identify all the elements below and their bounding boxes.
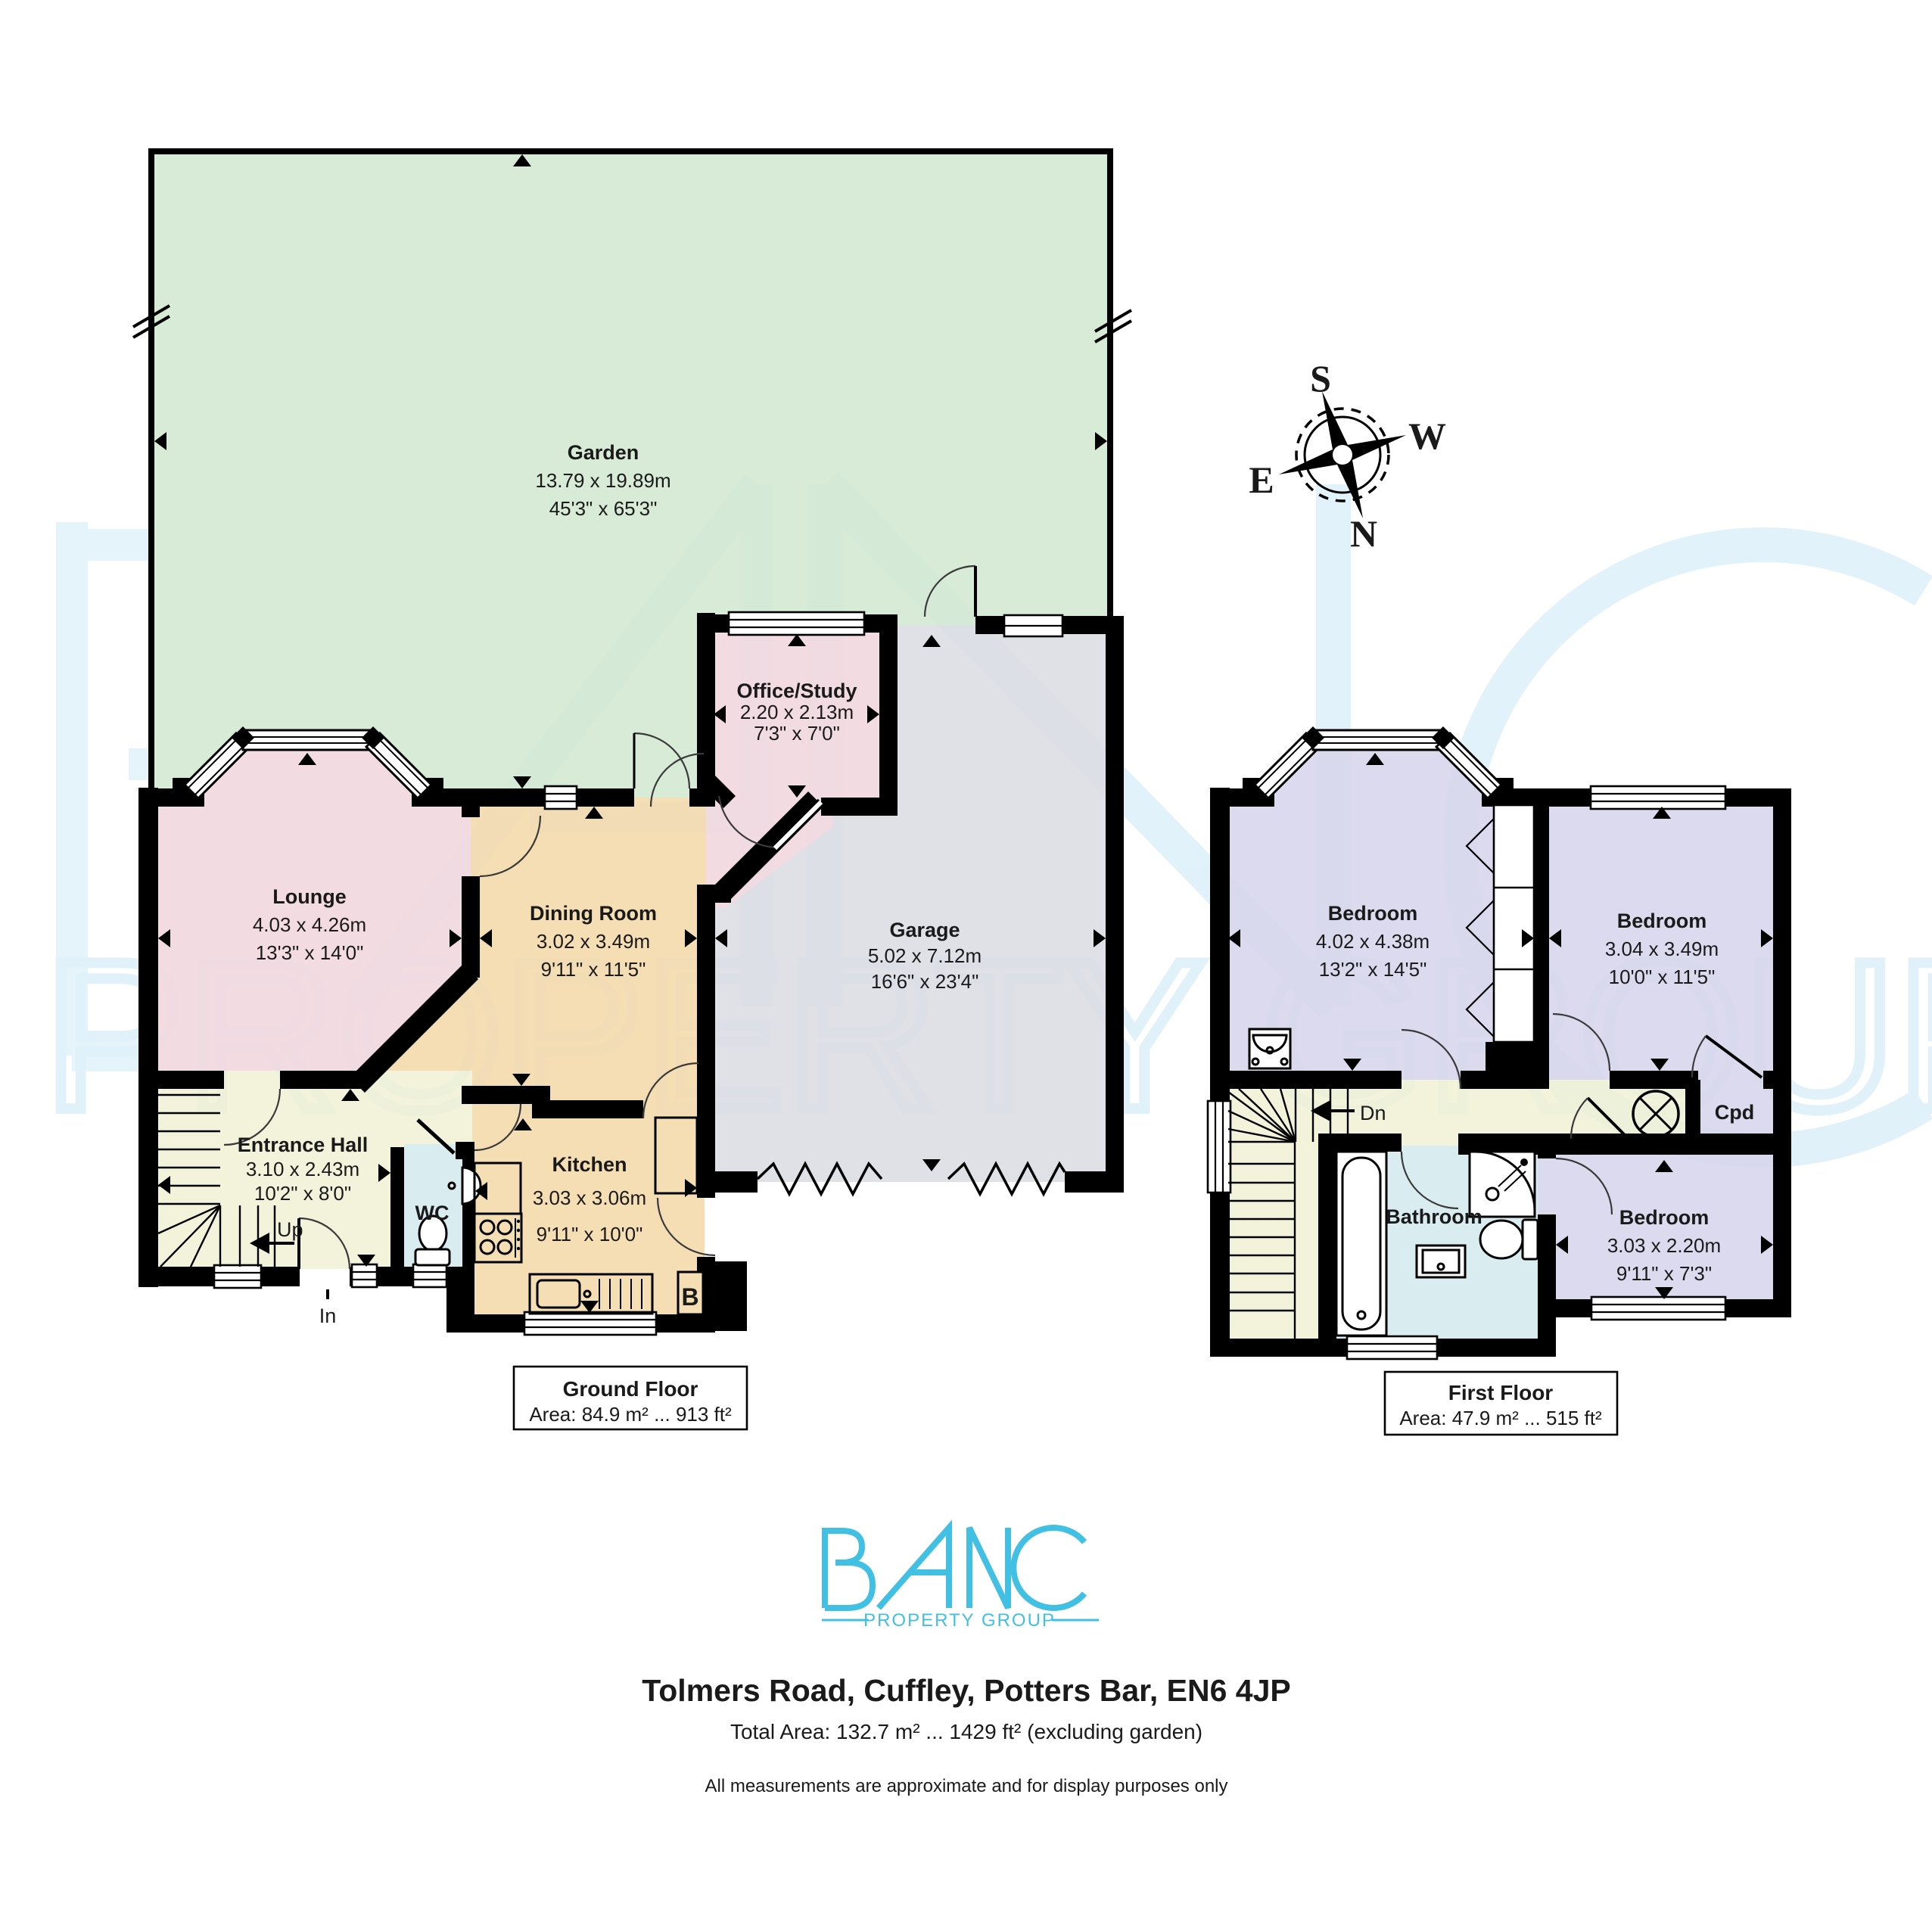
svg-text:Ground Floor: Ground Floor bbox=[563, 1377, 698, 1401]
svg-text:Lounge: Lounge bbox=[272, 885, 346, 908]
svg-text:E: E bbox=[1249, 459, 1274, 501]
svg-text:N: N bbox=[1350, 512, 1377, 555]
svg-text:W: W bbox=[1408, 415, 1446, 457]
svg-text:16'6" x 23'4": 16'6" x 23'4" bbox=[871, 970, 979, 993]
svg-text:Bedroom: Bedroom bbox=[1617, 910, 1707, 932]
svg-text:S: S bbox=[1310, 357, 1331, 400]
svg-text:WC: WC bbox=[415, 1202, 450, 1224]
svg-text:3.03 x 2.20m: 3.03 x 2.20m bbox=[1607, 1234, 1721, 1257]
svg-text:4.03 x 4.26m: 4.03 x 4.26m bbox=[253, 913, 366, 936]
svg-text:Area: 47.9 m² ... 515 ft²: Area: 47.9 m² ... 515 ft² bbox=[1399, 1407, 1602, 1429]
svg-text:13'3" x 14'0": 13'3" x 14'0" bbox=[256, 941, 364, 964]
svg-text:4.02 x 4.38m: 4.02 x 4.38m bbox=[1316, 930, 1430, 953]
svg-text:Area: 84.9 m² ... 913 ft²: Area: 84.9 m² ... 913 ft² bbox=[529, 1403, 732, 1426]
svg-text:9'11" x 10'0": 9'11" x 10'0" bbox=[537, 1223, 643, 1245]
svg-text:3.10 x 2.43m: 3.10 x 2.43m bbox=[246, 1158, 359, 1180]
svg-text:13.79 x 19.89m: 13.79 x 19.89m bbox=[535, 469, 670, 492]
svg-text:5.02 x 7.12m: 5.02 x 7.12m bbox=[868, 944, 982, 967]
svg-text:2.20 x 2.13m: 2.20 x 2.13m bbox=[740, 701, 854, 723]
svg-text:Total Area: 132.7 m² ... 1429: Total Area: 132.7 m² ... 1429 ft² (exclu… bbox=[730, 1720, 1202, 1743]
svg-text:7'3" x 7'0": 7'3" x 7'0" bbox=[754, 722, 840, 745]
svg-text:13'2" x 14'5": 13'2" x 14'5" bbox=[1319, 958, 1427, 981]
svg-text:PROPERTY GROUP: PROPERTY GROUP bbox=[863, 1610, 1056, 1631]
svg-text:Bathroom: Bathroom bbox=[1386, 1205, 1482, 1228]
svg-text:3.02 x 3.49m: 3.02 x 3.49m bbox=[537, 930, 650, 953]
svg-text:Garage: Garage bbox=[889, 919, 960, 941]
svg-text:3.04 x 3.49m: 3.04 x 3.49m bbox=[1605, 938, 1719, 960]
svg-text:Dn: Dn bbox=[1360, 1102, 1386, 1124]
svg-text:Bedroom: Bedroom bbox=[1619, 1206, 1710, 1229]
svg-text:Entrance Hall: Entrance Hall bbox=[238, 1134, 369, 1156]
svg-text:Cpd: Cpd bbox=[1715, 1101, 1754, 1124]
svg-text:Bedroom: Bedroom bbox=[1328, 902, 1418, 925]
svg-text:10'0" x 11'5": 10'0" x 11'5" bbox=[1609, 966, 1716, 988]
svg-text:B: B bbox=[681, 1283, 698, 1311]
svg-text:All measurements are approxima: All measurements are approximate and for… bbox=[705, 1776, 1227, 1796]
svg-text:Garden: Garden bbox=[568, 441, 639, 464]
svg-text:Kitchen: Kitchen bbox=[552, 1153, 627, 1176]
svg-text:Dining Room: Dining Room bbox=[530, 902, 657, 925]
svg-text:Up: Up bbox=[277, 1218, 303, 1241]
svg-text:Office/Study: Office/Study bbox=[736, 680, 857, 702]
svg-text:45'3" x 65'3": 45'3" x 65'3" bbox=[549, 497, 658, 520]
svg-text:9'11" x 7'3": 9'11" x 7'3" bbox=[1616, 1262, 1712, 1285]
svg-text:3.03 x 3.06m: 3.03 x 3.06m bbox=[533, 1186, 646, 1209]
svg-text:Tolmers Road, Cuffley, Potters: Tolmers Road, Cuffley, Potters Bar, EN6 … bbox=[642, 1673, 1290, 1708]
svg-text:First Floor: First Floor bbox=[1448, 1381, 1554, 1404]
svg-text:10'2" x 8'0": 10'2" x 8'0" bbox=[254, 1182, 351, 1205]
svg-text:9'11" x 11'5": 9'11" x 11'5" bbox=[541, 958, 646, 981]
svg-text:In: In bbox=[319, 1305, 337, 1327]
